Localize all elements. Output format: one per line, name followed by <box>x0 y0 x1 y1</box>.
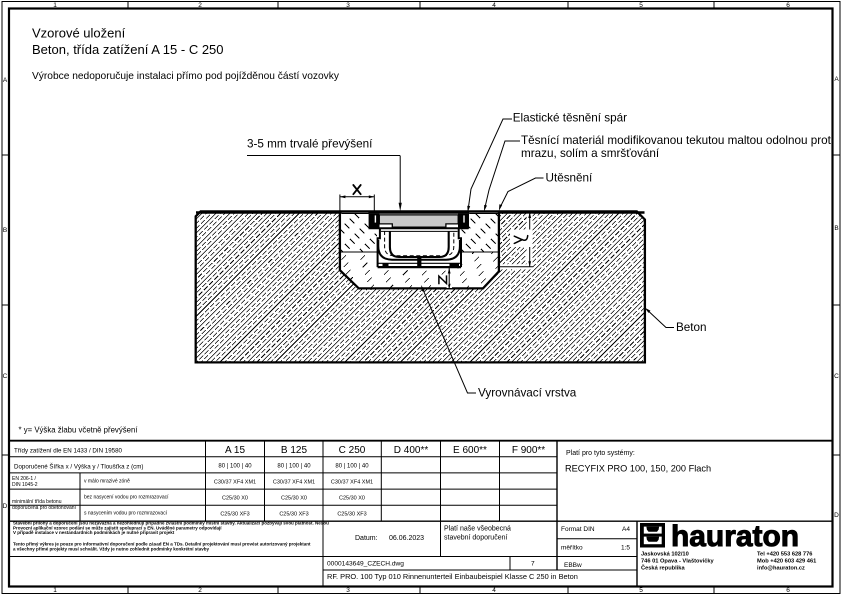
svg-text:3-5 mm trvalé převýšení: 3-5 mm trvalé převýšení <box>247 138 373 151</box>
svg-text:C30/37 XF4 XM1: C30/37 XF4 XM1 <box>273 480 315 486</box>
svg-text:Platí pro tyto systémy:: Platí pro tyto systémy: <box>566 450 635 457</box>
svg-text:C30/37 XF4 XM1: C30/37 XF4 XM1 <box>214 480 256 486</box>
svg-text:1: 1 <box>53 2 57 9</box>
svg-text:Tel +420 553 628 776: Tel +420 553 628 776 <box>757 552 812 558</box>
svg-text:Česká republika: Česká republika <box>641 565 685 572</box>
svg-text:C25/30 XF3: C25/30 XF3 <box>337 512 366 518</box>
svg-text:3: 3 <box>346 2 350 9</box>
svg-text:DIN 1045-2: DIN 1045-2 <box>12 482 38 488</box>
svg-text:2: 2 <box>198 2 202 9</box>
svg-text:6: 6 <box>786 2 790 9</box>
svg-text:F 900**: F 900** <box>512 445 545 456</box>
svg-text:info@hauraton.cz: info@hauraton.cz <box>757 566 805 572</box>
svg-text:06.06.2023: 06.06.2023 <box>389 535 424 542</box>
svg-text:5: 5 <box>639 2 643 9</box>
svg-text:D: D <box>3 503 8 510</box>
svg-text:a všechny přímé projekty musí: a všechny přímé projekty musí schválit. … <box>13 547 210 552</box>
svg-text:RECYFIX PRO 100, 150, 200 Flac: RECYFIX PRO 100, 150, 200 Flach <box>565 464 711 474</box>
svg-text:EBBw: EBBw <box>564 562 582 569</box>
svg-text:mrazu, solím a smršťování: mrazu, solím a smršťování <box>521 147 660 160</box>
svg-text:Beton: Beton <box>676 321 707 334</box>
svg-text:D 400**: D 400** <box>394 445 429 456</box>
svg-text:Format DIN: Format DIN <box>561 526 595 533</box>
svg-text:80 | 100 | 40: 80 | 100 | 40 <box>335 464 369 470</box>
svg-text:1: 1 <box>53 587 57 594</box>
svg-text:A4: A4 <box>622 526 630 533</box>
svg-text:C25/30 X0: C25/30 X0 <box>339 496 365 502</box>
svg-text:* y= Výška žlabu včetně převýš: * y= Výška žlabu včetně převýšení <box>19 426 139 435</box>
svg-text:A: A <box>3 77 8 84</box>
svg-text:3: 3 <box>346 587 350 594</box>
svg-text:80 | 100 | 40: 80 | 100 | 40 <box>277 464 311 470</box>
svg-text:Datum:: Datum: <box>355 535 378 542</box>
svg-text:Vzorové uložení: Vzorové uložení <box>32 26 126 41</box>
svg-text:bez nasycení vodou pro rozmraz: bez nasycení vodou pro rozmrazovací <box>84 495 169 501</box>
svg-text:Utěsnění: Utěsnění <box>546 172 594 185</box>
svg-text:80 | 100 | 40: 80 | 100 | 40 <box>218 464 252 470</box>
svg-text:6: 6 <box>786 587 790 594</box>
svg-text:stavební doporučení: stavební doporučení <box>444 535 507 542</box>
svg-text:C: C <box>834 373 839 380</box>
svg-text:B 125: B 125 <box>281 445 308 456</box>
svg-text:C25/30 XF3: C25/30 XF3 <box>279 512 308 518</box>
svg-text:hauraton: hauraton <box>671 520 799 553</box>
svg-text:s nasycením vodou pro rozmrazo: s nasycením vodou pro rozmrazovací <box>84 511 168 517</box>
svg-text:Beton, třída zatížení A 15 - C: Beton, třída zatížení A 15 - C 250 <box>32 42 224 57</box>
svg-text:A: A <box>834 76 839 83</box>
svg-text:Doporučené Šířka x / Výška y: Doporučené Šířka x / Výška y / Tloušťka … <box>14 464 143 471</box>
svg-text:7: 7 <box>531 561 535 568</box>
svg-text:C25/30 XF3: C25/30 XF3 <box>220 512 249 518</box>
svg-text:2: 2 <box>198 587 202 594</box>
svg-text:746 01 Opava - Vlaštovičky: 746 01 Opava - Vlaštovičky <box>641 559 715 565</box>
svg-text:B: B <box>3 227 7 234</box>
svg-text:D: D <box>834 512 839 519</box>
svg-text:Vyrovnávací vrstva: Vyrovnávací vrstva <box>478 387 577 400</box>
svg-text:4: 4 <box>492 2 496 9</box>
svg-text:0000143649_CZECH.dwg: 0000143649_CZECH.dwg <box>327 561 404 568</box>
svg-text:C25/30 X0: C25/30 X0 <box>222 496 248 502</box>
svg-text:Elastické těsnění spár: Elastické těsnění spár <box>513 112 627 125</box>
svg-text:A 15: A 15 <box>225 445 245 456</box>
svg-text:Jaskovská 102/10: Jaskovská 102/10 <box>641 552 689 558</box>
svg-text:Těsnící materiál modifikovanou: Těsnící materiál modifikovanou tekutou m… <box>521 134 834 147</box>
svg-text:v málo mrazivé zóně: v málo mrazivé zóně <box>84 479 130 485</box>
svg-text:Mob +420 603 429 461: Mob +420 603 429 461 <box>757 559 816 565</box>
svg-text:RF. PRO. 100 Typ 010 Rinnenunt: RF. PRO. 100 Typ 010 Rinnenunterteil Ein… <box>327 572 578 581</box>
svg-text:5: 5 <box>639 587 643 594</box>
svg-text:E 600**: E 600** <box>453 445 487 456</box>
svg-text:4: 4 <box>492 587 496 594</box>
svg-text:C25/30 X0: C25/30 X0 <box>281 496 307 502</box>
svg-text:doporučená pro obetonování: doporučená pro obetonování <box>12 505 77 511</box>
svg-text:C30/37 XF4 XM1: C30/37 XF4 XM1 <box>331 480 373 486</box>
svg-text:V případě instalace v nestanda: V případě instalace v nestandardních pod… <box>13 530 175 535</box>
svg-text:C: C <box>3 373 8 380</box>
svg-text:1:5: 1:5 <box>621 545 630 552</box>
svg-text:B: B <box>834 225 838 232</box>
svg-text:C 250: C 250 <box>339 445 366 456</box>
svg-text:měřítko: měřítko <box>561 545 583 552</box>
svg-text:Třídy zatížení dle EN 1433 / D: Třídy zatížení dle EN 1433 / DIN 19580 <box>14 448 123 455</box>
svg-text:Platí naše všeobecná: Platí naše všeobecná <box>444 526 511 533</box>
svg-text:Výrobce nedoporučuje instalaci: Výrobce nedoporučuje instalaci přímo pod… <box>32 71 340 82</box>
